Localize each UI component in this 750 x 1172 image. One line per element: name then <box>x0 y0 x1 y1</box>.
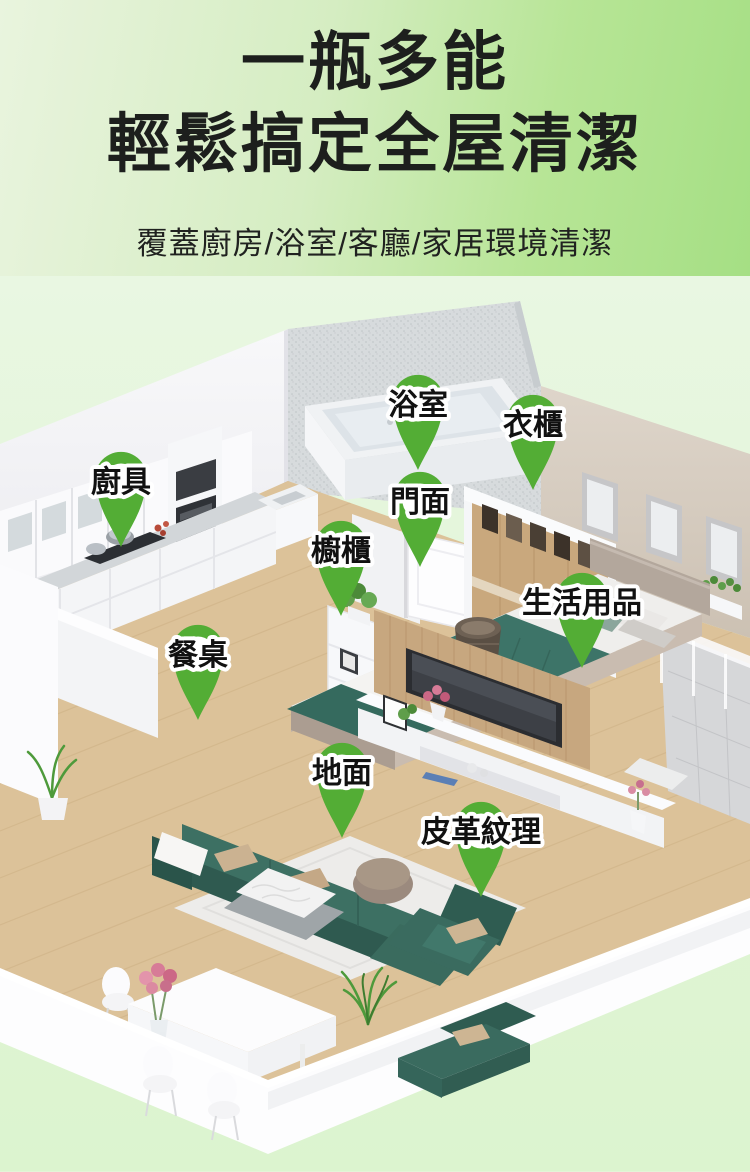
apartment-3d-illustration <box>0 276 750 1172</box>
page-title-line2: 輕鬆搞定全屋清潔 <box>0 112 750 176</box>
header-banner: 一瓶多能 輕鬆搞定全屋清潔 覆蓋廚房/浴室/客廳/家居環境清潔 <box>0 0 750 276</box>
page-title-line1: 一瓶多能 <box>0 30 750 94</box>
promo-page: { "header": { "title_line1": "一瓶多能", "ti… <box>0 0 750 1171</box>
page-subtitle: 覆蓋廚房/浴室/客廳/家居環境清潔 <box>0 218 750 263</box>
apartment-scene <box>0 276 750 1171</box>
ottoman-pouf <box>353 858 413 904</box>
